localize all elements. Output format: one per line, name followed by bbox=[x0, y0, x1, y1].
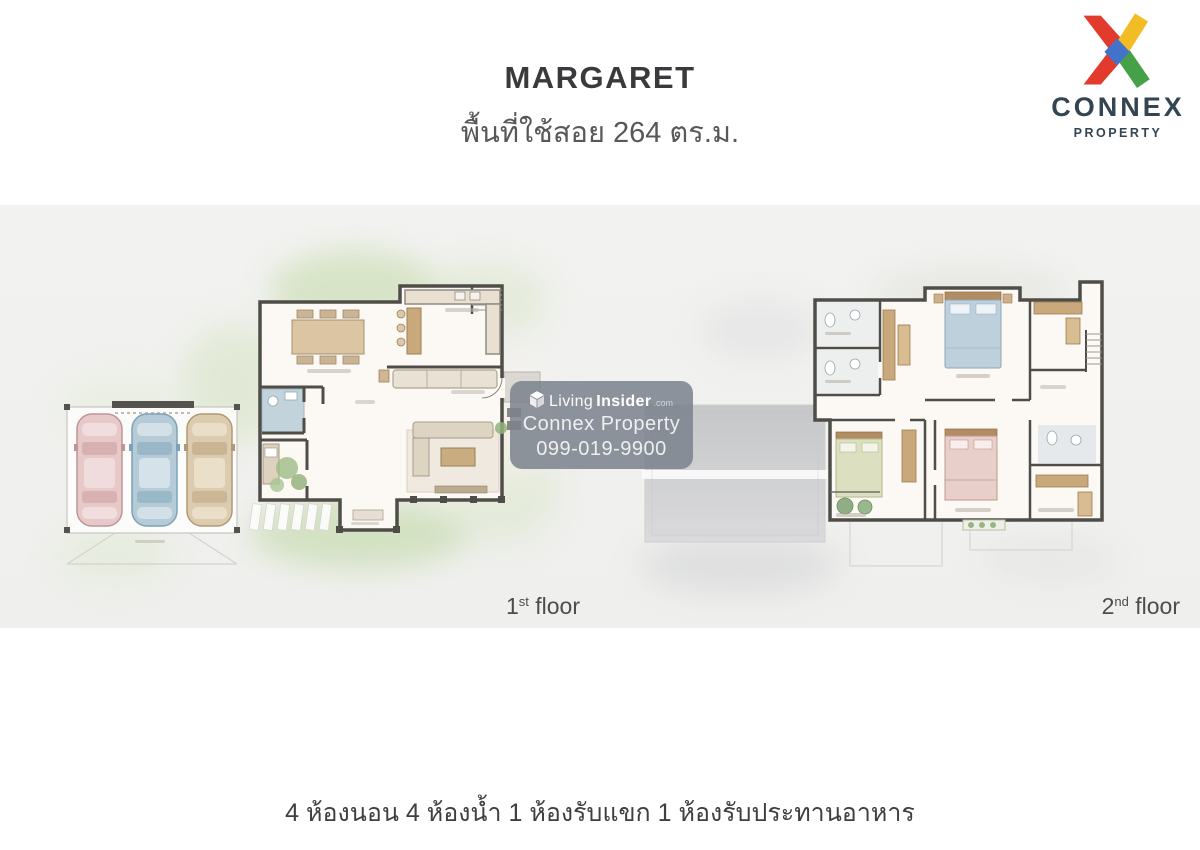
floorplan-canvas: Living Insider .com Connex Property 099-… bbox=[0, 205, 1200, 628]
hall-label-mark bbox=[1040, 385, 1066, 389]
stepping-stones bbox=[249, 504, 332, 531]
watermark: Living Insider .com Connex Property 099-… bbox=[510, 381, 693, 469]
watermark-company: Connex Property bbox=[523, 413, 681, 436]
room-summary-line1: 4 ห้องนอน 4 ห้องน้ำ 1 ห้องรับแขก 1 ห้องร… bbox=[0, 790, 1200, 836]
second-floor-ordinal: nd bbox=[1114, 594, 1128, 609]
first-floor-ordinal: st bbox=[519, 594, 529, 609]
page: MARGARET พื้นที่ใช้สอย 264 ตร.ม. CONNEX … bbox=[0, 0, 1200, 850]
usable-area-subtitle: พื้นที่ใช้สอย 264 ตร.ม. bbox=[0, 109, 1200, 155]
house-second-floor bbox=[815, 282, 1102, 566]
watermark-brand-light: Living bbox=[549, 393, 593, 411]
lower-roof-outline bbox=[850, 522, 1072, 566]
connex-x-icon bbox=[1072, 12, 1164, 90]
header: MARGARET พื้นที่ใช้สอย 264 ตร.ม. bbox=[0, 60, 1200, 155]
car-blue bbox=[129, 414, 180, 526]
second-floor-number: 2 bbox=[1102, 593, 1115, 619]
page-title: MARGARET bbox=[0, 60, 1200, 96]
brand-name: CONNEX bbox=[1040, 92, 1196, 123]
driveway bbox=[67, 533, 237, 564]
first-floor-word: floor bbox=[535, 593, 580, 619]
connex-logo: CONNEX PROPERTY bbox=[1040, 12, 1196, 140]
living-insider-cube-icon bbox=[530, 391, 544, 408]
car-pink bbox=[74, 414, 125, 526]
sofa-long bbox=[379, 367, 502, 388]
watermark-phone: 099-019-9900 bbox=[536, 438, 667, 461]
brand-tagline: PROPERTY bbox=[1040, 126, 1196, 140]
first-floor-label: 1st floor bbox=[440, 593, 580, 620]
watermark-brand: Living Insider .com bbox=[530, 389, 673, 411]
room-summary: 4 ห้องนอน 4 ห้องน้ำ 1 ห้องรับแขก 1 ห้องร… bbox=[0, 698, 1200, 850]
second-floor-word: floor bbox=[1135, 593, 1180, 619]
hall-label-mark bbox=[355, 400, 375, 404]
watermark-brand-bold: Insider bbox=[596, 393, 651, 411]
house-first-floor bbox=[260, 286, 540, 533]
carport bbox=[64, 401, 240, 564]
second-floor-label: 2nd floor bbox=[1040, 593, 1180, 620]
bathroom-2 bbox=[815, 302, 880, 348]
car-tan bbox=[184, 414, 235, 526]
second-floor-plan bbox=[640, 270, 1110, 580]
first-floor-number: 1 bbox=[506, 593, 519, 619]
balcony-planter bbox=[963, 520, 1005, 530]
watermark-brand-suffix: .com bbox=[653, 398, 673, 408]
